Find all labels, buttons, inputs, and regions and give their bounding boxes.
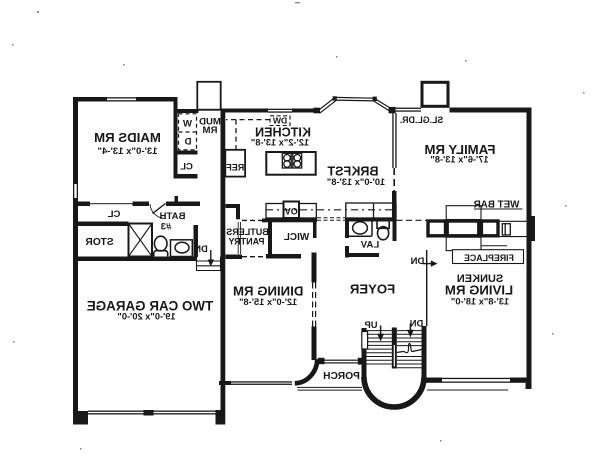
svg-text:19'-0"x 20'-0": 19'-0"x 20'-0" xyxy=(117,311,175,321)
svg-text:MAIDS RM: MAIDS RM xyxy=(94,130,161,145)
svg-text:UP: UP xyxy=(365,320,378,330)
svg-text:DN: DN xyxy=(410,319,424,329)
svg-text:DN: DN xyxy=(411,256,425,267)
svg-text:LAV: LAV xyxy=(360,239,379,250)
svg-text:LIVING RM: LIVING RM xyxy=(445,282,513,297)
svg-text:WICL: WICL xyxy=(284,232,310,243)
svg-text:REF: REF xyxy=(226,163,245,173)
svg-text:12'-2"x 13'-8": 12'-2"x 13'-8" xyxy=(251,138,309,148)
svg-text:STOR: STOR xyxy=(85,237,114,248)
svg-text:CL: CL xyxy=(107,209,120,220)
svg-text:13'-0"x 13'-4": 13'-0"x 13'-4" xyxy=(97,146,157,157)
svg-text:PANTRY: PANTRY xyxy=(229,237,265,247)
svg-text:FIREPLACE: FIREPLACE xyxy=(464,253,514,263)
svg-text:BATH: BATH xyxy=(159,211,185,222)
svg-text:PORCH: PORCH xyxy=(323,371,360,382)
svg-text:12'-0"x 15'-8": 12'-0"x 15'-8" xyxy=(239,297,297,307)
svg-text:W: W xyxy=(182,119,192,130)
svg-text:#3: #3 xyxy=(161,222,172,233)
svg-text:SL.GL.DR.: SL.GL.DR. xyxy=(400,115,444,125)
svg-text:RM: RM xyxy=(203,125,218,136)
svg-text:CL: CL xyxy=(180,162,193,173)
svg-text:17'-6"x 13'-8": 17'-6"x 13'-8" xyxy=(430,154,488,164)
svg-text:FOYER: FOYER xyxy=(349,282,395,297)
svg-text:10'-0"x 13'-8": 10'-0"x 13'-8" xyxy=(327,177,385,187)
svg-text:BUTLERS: BUTLERS xyxy=(226,227,269,237)
svg-text:WET BAR: WET BAR xyxy=(474,199,520,210)
svg-text:D: D xyxy=(184,137,191,148)
svg-text:DN: DN xyxy=(194,244,208,254)
svg-text:13'-8"x 18'-0": 13'-8"x 18'-0" xyxy=(451,296,509,306)
svg-text:DW: DW xyxy=(272,115,287,125)
svg-text:OV: OV xyxy=(285,206,298,216)
